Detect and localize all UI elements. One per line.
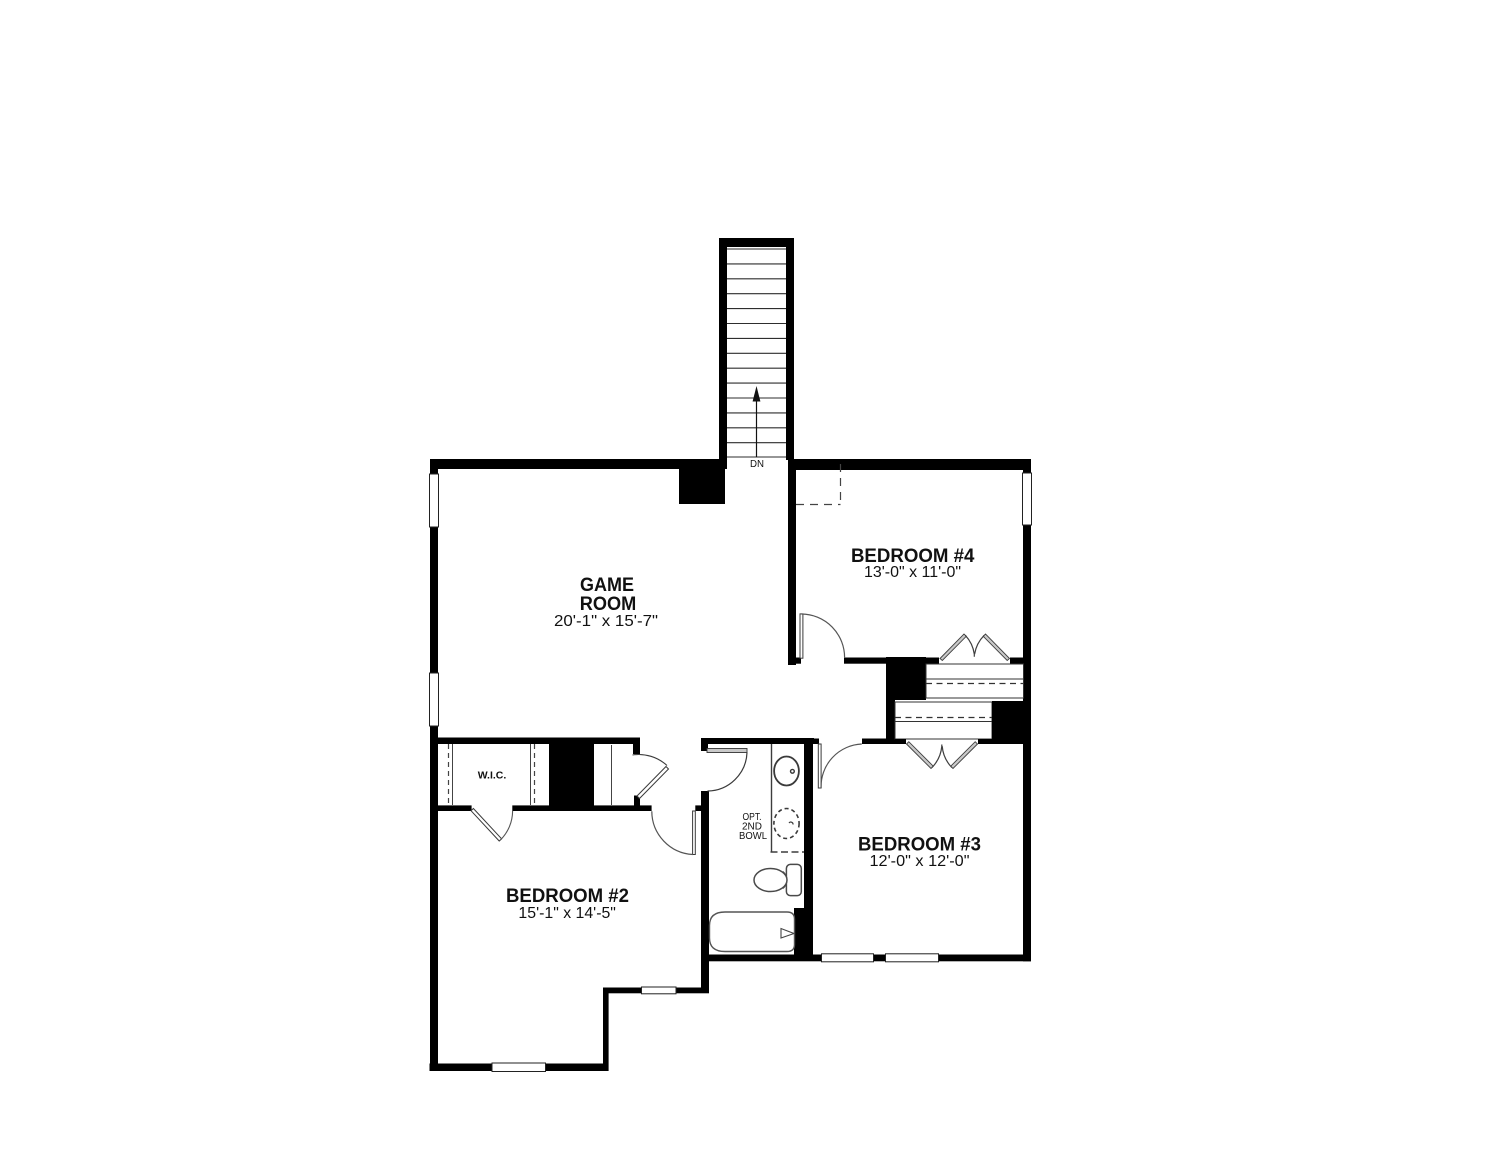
svg-text:13'-0" x 11'-0": 13'-0" x 11'-0" xyxy=(864,564,961,581)
svg-text:15'-1" x 14'-5": 15'-1" x 14'-5" xyxy=(518,905,616,922)
svg-text:ROOM: ROOM xyxy=(580,593,637,615)
svg-text:20'-1" x 15'-7": 20'-1" x 15'-7" xyxy=(554,613,658,630)
svg-text:12'-0" x 12'-0": 12'-0" x 12'-0" xyxy=(870,853,970,870)
svg-text:BEDROOM #2: BEDROOM #2 xyxy=(506,885,629,907)
svg-text:DN: DN xyxy=(750,458,764,470)
svg-text:W.I.C.: W.I.C. xyxy=(478,770,507,782)
svg-text:BOWL: BOWL xyxy=(739,831,767,842)
